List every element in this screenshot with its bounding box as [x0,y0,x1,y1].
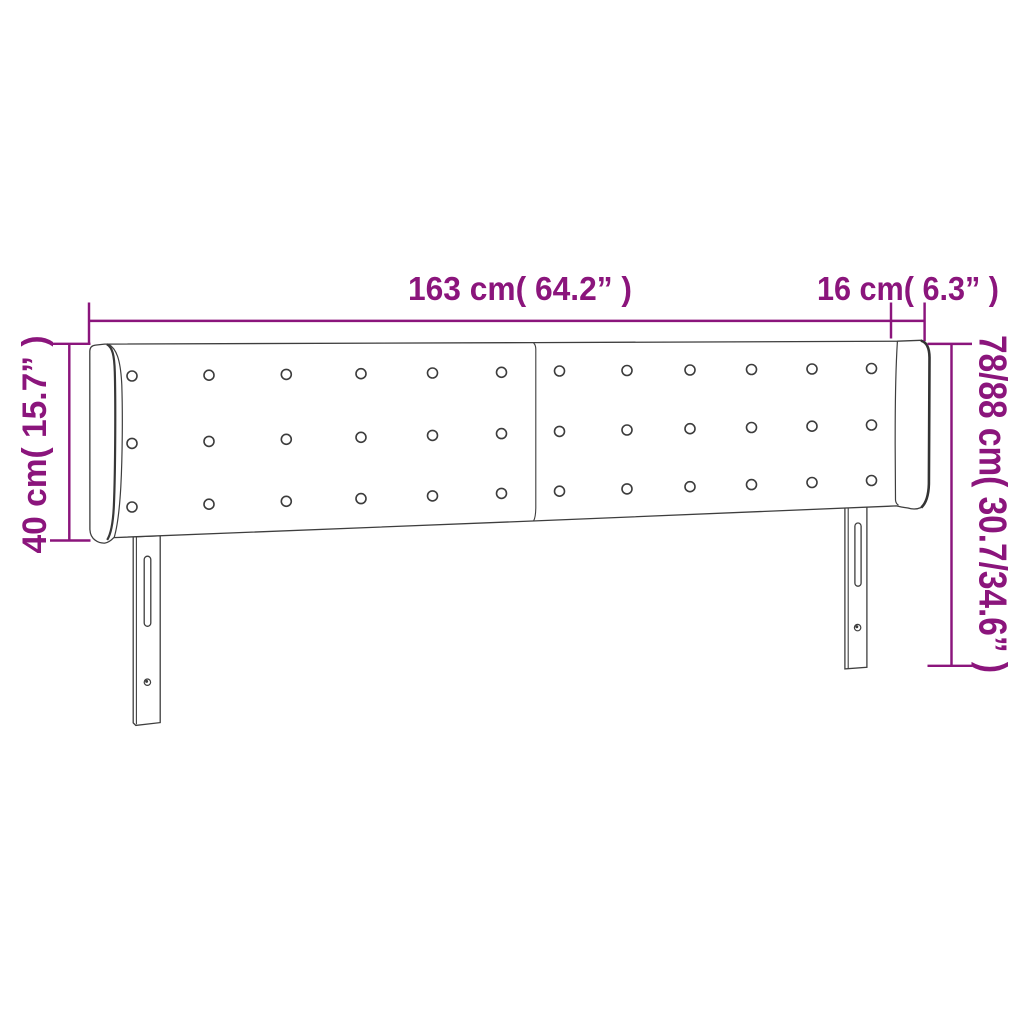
svg-text:16 cm( 6.3” ): 16 cm( 6.3” ) [817,270,999,307]
svg-text:163 cm( 64.2” ): 163 cm( 64.2” ) [408,270,632,307]
svg-text:40 cm( 15.7” ): 40 cm( 15.7” ) [16,336,54,554]
svg-text:78/88 cm( 30.7/34.6” ): 78/88 cm( 30.7/34.6” ) [971,335,1014,673]
